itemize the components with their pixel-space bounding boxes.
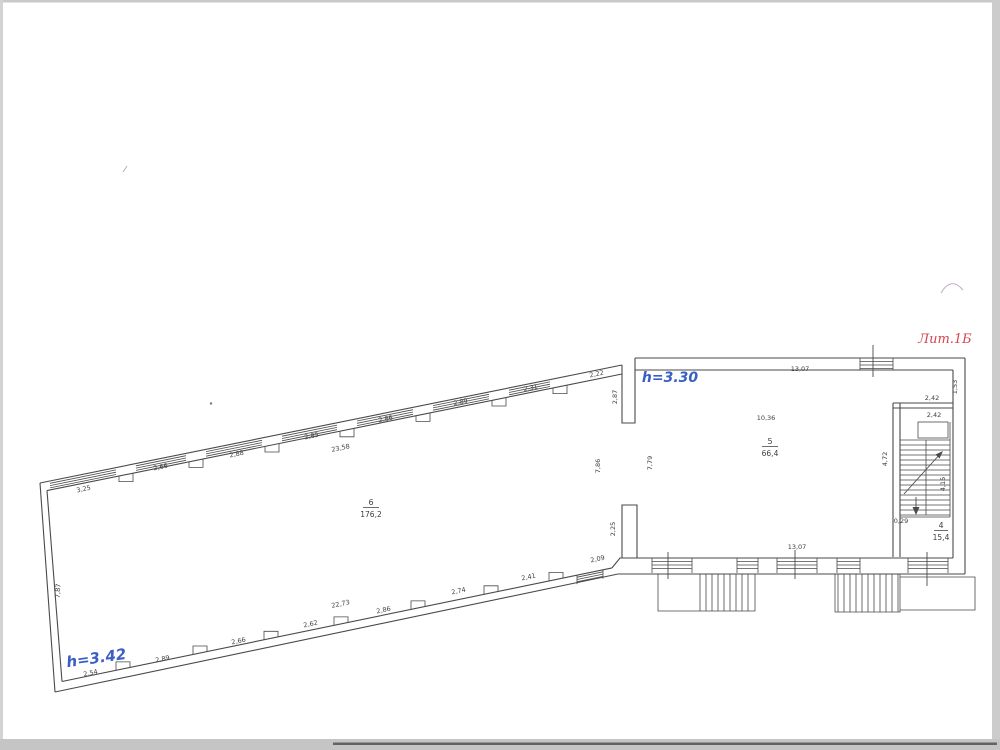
- room-area: 176,2: [360, 510, 382, 519]
- dim-label: 13,07: [788, 543, 807, 551]
- porch-b-landing: [900, 577, 975, 610]
- window: [837, 558, 860, 573]
- dim-label: 0,29: [894, 517, 908, 525]
- dim-label: 2,62: [303, 619, 319, 630]
- bottom-wall-outer: [55, 574, 965, 692]
- room-number: 6: [368, 498, 373, 507]
- porch-a-steps: [700, 574, 748, 611]
- scan-edge-right: [992, 0, 1000, 750]
- dim-label: 3,25: [76, 484, 92, 495]
- dim-label: 2,85: [304, 431, 320, 442]
- scan-edge-left: [0, 0, 3, 750]
- height-annotations: h=3.42 h=3.30 Лит.1Б: [65, 332, 972, 671]
- ceiling-height-label-right: h=3.30: [642, 370, 698, 386]
- window: [652, 558, 692, 573]
- dim-label: 2,41: [521, 572, 537, 583]
- scan-edges: [0, 0, 1000, 750]
- dim-label: 7,79: [646, 456, 654, 470]
- dim-label: 2,86: [378, 414, 394, 425]
- interior-stub-wall: [622, 505, 637, 558]
- dim-label: 2,09: [590, 554, 606, 565]
- scan-scratch: [941, 284, 963, 293]
- window: [737, 558, 758, 573]
- dim-label: 2,87: [611, 390, 619, 404]
- dim-label: 1,53: [951, 380, 959, 394]
- dim-label: 13,07: [791, 365, 810, 373]
- room-labels: 6 176,2 5 66,4 4 15,4: [360, 437, 949, 542]
- bottom-wall-inner-right: [612, 558, 953, 568]
- scan-bottom-line: [333, 743, 997, 746]
- window: [777, 558, 817, 573]
- porch-b-steps: [838, 574, 898, 612]
- right-bottom-windows: [652, 550, 948, 586]
- bottom-wall-dimension-labels: 2,54 2,89 2,66 2,62 2,86 2,74 2,41 2,09 …: [54, 554, 606, 679]
- room-area: 66,4: [762, 449, 779, 458]
- stair-landing: [918, 422, 948, 438]
- right-section-dimension-labels: 13,07 10,36 13,07 2,42 2,42 1,53 4,72 4,…: [594, 365, 959, 551]
- bottom-wall-inner-angled: [62, 568, 612, 682]
- top-wall-inner: [47, 374, 622, 491]
- top-wall-piers: [119, 385, 567, 481]
- dim-label: 7,87: [54, 583, 63, 598]
- dim-label: 2,42: [925, 394, 939, 402]
- dim-label: 2,66: [153, 462, 169, 473]
- top-wall-windows: [50, 382, 550, 488]
- dim-label-overall: 23,58: [331, 442, 351, 454]
- left-wall-outer: [40, 483, 55, 692]
- dim-label-overall: 22,73: [331, 598, 351, 610]
- dim-label: 2,54: [83, 668, 99, 679]
- room-number: 4: [938, 521, 943, 530]
- scan-edge-top: [0, 0, 1000, 3]
- stair-top-wall: [893, 403, 953, 408]
- top-notch-wall: [622, 358, 635, 423]
- dim-label: 2,42: [927, 411, 941, 419]
- building-walls: [40, 358, 965, 692]
- stair-right-edge: [900, 422, 950, 517]
- room-number: 5: [767, 437, 772, 446]
- porch-b-outline: [835, 574, 900, 612]
- porch-a-outline: [658, 574, 755, 611]
- dim-label: 2,66: [231, 636, 247, 647]
- scan-page: 3,25 2,66 2,88 2,85 2,86 2,89 2,31 2,22 …: [0, 0, 1000, 750]
- room-area: 15,4: [933, 533, 950, 542]
- dim-label: 7,86: [594, 459, 602, 473]
- window: [860, 358, 893, 370]
- right-top-window: [860, 345, 893, 377]
- window: [908, 558, 948, 573]
- dim-label: 2,74: [451, 586, 467, 597]
- dim-label: 10,36: [757, 414, 776, 422]
- dim-label: 2,88: [229, 449, 245, 460]
- stair-left-wall: [893, 403, 900, 557]
- dim-label: 2,25: [609, 522, 617, 536]
- floor-plan-svg: 3,25 2,66 2,88 2,85 2,86 2,89 2,31 2,22 …: [0, 0, 1000, 750]
- top-wall-dimension-labels: 3,25 2,66 2,88 2,85 2,86 2,89 2,31 2,22 …: [76, 369, 619, 495]
- liter-label: Лит.1Б: [917, 332, 972, 347]
- dim-label: 4,15: [939, 477, 947, 491]
- dim-label: 2,89: [155, 654, 171, 665]
- dim-label: 4,72: [881, 452, 889, 466]
- stair-direction-line: [904, 453, 941, 494]
- scan-speck-1: [123, 166, 127, 172]
- scan-speck-2: [210, 402, 212, 404]
- stair-down-arrow-head: [913, 507, 920, 515]
